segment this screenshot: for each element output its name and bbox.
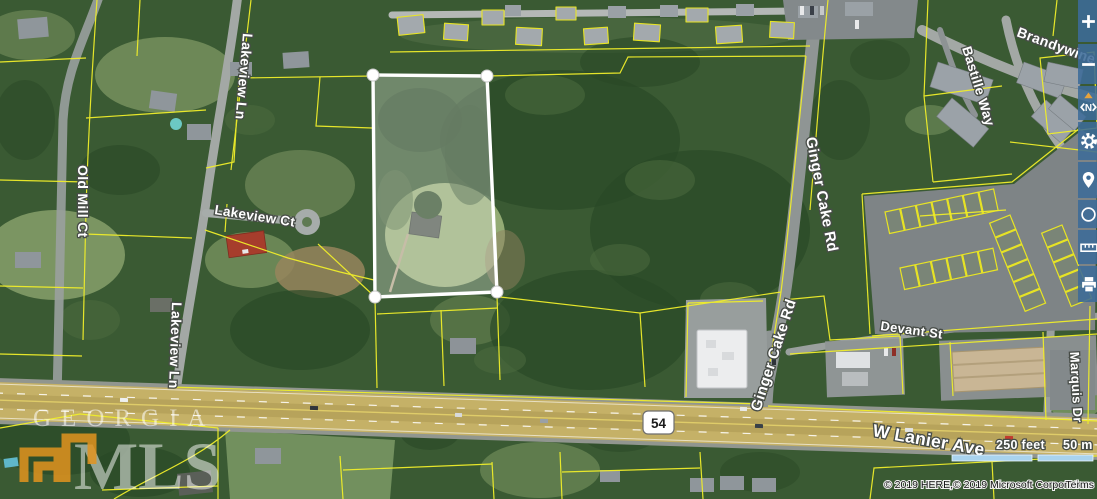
rotate-view-button[interactable]: N	[1078, 86, 1097, 120]
aerial-map-canvas[interactable]: Old Mill Ct Lakeview Ln Lakeview Ln Lake…	[0, 0, 1097, 499]
zoom-in-button[interactable]	[1078, 0, 1097, 42]
scale-meters-label: 50 m	[1063, 438, 1093, 452]
circle-icon	[1080, 206, 1097, 223]
road-label-old-mill-ct: Old Mill Ct	[75, 165, 91, 238]
cul-de-sac-island	[302, 217, 312, 227]
map-attribution: © 2019 HERE,© 2019 Microsoft Corporation	[884, 479, 1090, 491]
location-pin-icon	[1080, 171, 1097, 189]
scale-feet-label: 250 feet	[996, 438, 1045, 452]
plus-icon	[1080, 13, 1097, 30]
radius-search-button[interactable]	[1078, 200, 1097, 228]
ruler-icon	[1080, 239, 1097, 256]
scale-bar-feet	[952, 455, 1032, 461]
terms-link[interactable]: Terms	[1065, 479, 1094, 491]
shield-number: 54	[651, 416, 667, 431]
gear-icon	[1080, 132, 1097, 150]
map-settings-button[interactable]	[1078, 122, 1097, 160]
printer-icon	[1080, 276, 1097, 293]
road-label-lakeview-ln-bottom: Lakeview Ln	[166, 302, 185, 389]
print-map-button[interactable]	[1078, 266, 1097, 302]
minus-icon	[1080, 56, 1097, 73]
highway-shield-54: 54	[643, 411, 674, 434]
map-imagery: Old Mill Ct Lakeview Ln Lakeview Ln Lake…	[0, 0, 1097, 499]
measure-distance-button[interactable]	[1078, 230, 1097, 264]
zoom-out-button[interactable]	[1078, 44, 1097, 84]
compass-north-label: N	[1085, 103, 1092, 114]
compass-icon: N	[1080, 92, 1097, 114]
selected-parcel[interactable]	[367, 69, 503, 303]
my-location-button[interactable]	[1078, 162, 1097, 198]
scale-bar-meters	[1038, 455, 1093, 461]
